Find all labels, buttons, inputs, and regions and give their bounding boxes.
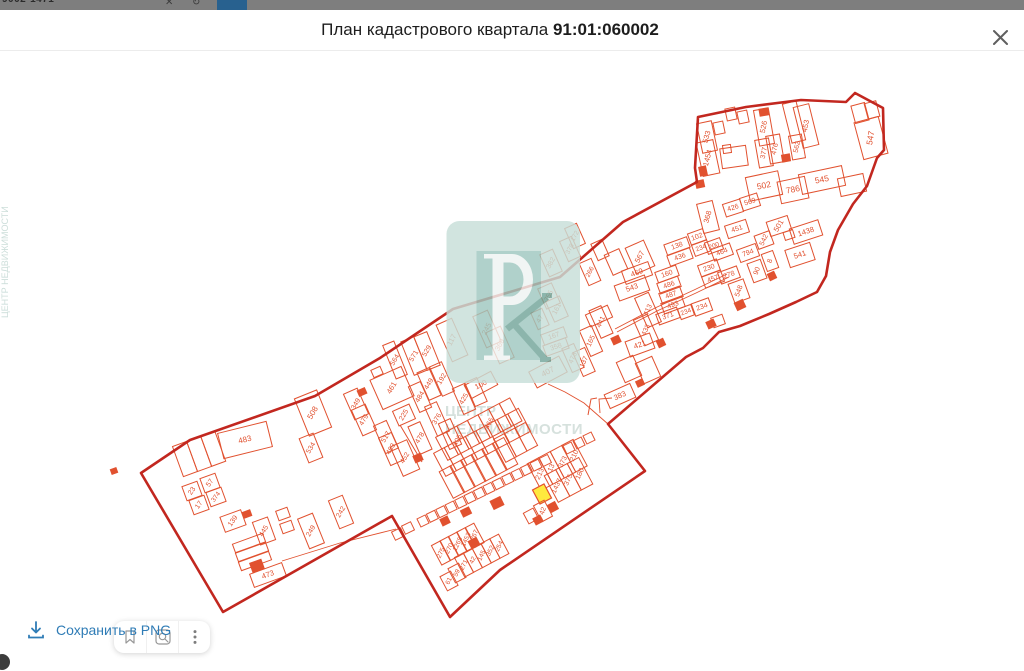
svg-text:266: 266 [585,265,596,278]
svg-text:17: 17 [194,500,204,510]
svg-text:543: 543 [624,281,639,294]
svg-text:547: 547 [864,130,876,146]
svg-text:469: 469 [629,266,644,279]
svg-text:534: 534 [305,441,317,455]
svg-text:445: 445 [258,524,270,538]
svg-text:1454: 1454 [701,149,714,167]
svg-text:453: 453 [800,119,811,133]
svg-text:137: 137 [579,355,590,369]
svg-text:567: 567 [633,249,647,264]
svg-text:165: 165 [586,334,597,348]
svg-text:90: 90 [753,266,762,276]
svg-text:545: 545 [814,173,830,186]
svg-text:349: 349 [350,397,362,411]
svg-text:242: 242 [335,505,347,519]
svg-text:529: 529 [421,344,433,358]
svg-text:368: 368 [702,210,714,224]
svg-text:ЦЕНТР НЕДВИЖИМОСТИ: ЦЕНТР НЕДВИЖИМОСТИ [0,206,10,318]
svg-text:548: 548 [734,284,745,297]
svg-text:8: 8 [766,258,774,264]
svg-text:180: 180 [575,467,586,481]
svg-text:426: 426 [726,203,739,213]
svg-text:562: 562 [793,141,802,154]
svg-text:476: 476 [771,143,780,156]
svg-text:473: 473 [260,568,275,581]
svg-text:57: 57 [205,478,215,488]
svg-text:421: 421 [632,338,647,351]
svg-text:249: 249 [305,524,317,538]
svg-text:383: 383 [612,389,627,402]
svg-text:225: 225 [398,408,410,422]
svg-text:213: 213 [535,467,546,481]
svg-text:794: 794 [741,248,754,259]
svg-text:541: 541 [792,248,807,260]
svg-text:526: 526 [758,120,769,134]
svg-text:234: 234 [695,302,708,313]
svg-text:502: 502 [756,179,772,192]
svg-text:1437: 1437 [551,478,564,495]
svg-text:542: 542 [759,233,770,247]
svg-text:254: 254 [494,540,505,553]
svg-text:210: 210 [569,449,580,463]
svg-text:139: 139 [227,514,239,528]
svg-text:479: 479 [358,413,370,427]
svg-text:483: 483 [237,434,253,446]
svg-text:23: 23 [187,486,197,496]
svg-text:451: 451 [730,224,743,234]
svg-text:НЕДВИЖИМОСТИ: НЕДВИЖИМОСТИ [445,421,583,438]
svg-text:375: 375 [563,473,574,487]
svg-text:786: 786 [785,183,801,196]
svg-text:1438: 1438 [797,225,816,239]
svg-text:374: 374 [210,490,222,503]
svg-text:571: 571 [408,349,420,363]
svg-text:508: 508 [305,404,320,421]
svg-text:461: 461 [385,380,399,395]
